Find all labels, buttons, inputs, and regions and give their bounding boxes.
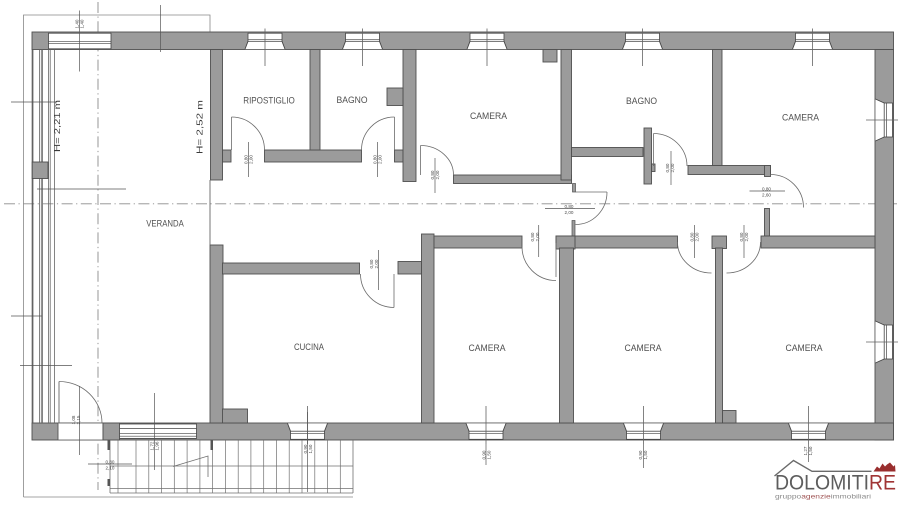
- svg-text:2,00: 2,00: [695, 232, 700, 241]
- svg-text:0,90: 0,90: [481, 450, 486, 459]
- svg-text:BAGNO: BAGNO: [337, 95, 368, 105]
- svg-text:CAMERA: CAMERA: [470, 111, 508, 121]
- svg-text:CUCINA: CUCINA: [294, 342, 325, 352]
- svg-text:0,80: 0,80: [665, 163, 670, 172]
- svg-text:2,10: 2,10: [106, 466, 115, 471]
- svg-text:2,60: 2,60: [762, 193, 771, 198]
- svg-text:RIPOSTIGLIO: RIPOSTIGLIO: [243, 96, 295, 106]
- svg-text:1,40: 1,40: [74, 19, 79, 28]
- svg-text:1,96: 1,96: [155, 441, 160, 450]
- svg-text:0,80: 0,80: [530, 232, 535, 241]
- svg-text:2,00: 2,00: [670, 163, 675, 172]
- svg-text:DOLOMITIRE: DOLOMITIRE: [775, 472, 896, 495]
- svg-text:1,50: 1,50: [808, 446, 813, 455]
- svg-text:0,80: 0,80: [372, 155, 377, 164]
- svg-text:1,40: 1,40: [80, 19, 85, 28]
- svg-text:H= 2,52 m: H= 2,52 m: [195, 100, 205, 154]
- svg-text:0,80: 0,80: [762, 187, 771, 192]
- svg-text:0,80: 0,80: [689, 232, 694, 241]
- svg-text:VERANDA: VERANDA: [146, 219, 184, 229]
- svg-text:CAMERA: CAMERA: [782, 113, 820, 123]
- svg-text:1,72: 1,72: [149, 441, 154, 450]
- svg-text:0,80: 0,80: [430, 170, 435, 179]
- svg-text:1,50: 1,50: [643, 450, 648, 459]
- svg-text:2,00: 2,00: [378, 155, 383, 164]
- svg-text:0,80: 0,80: [739, 232, 744, 241]
- svg-text:H= 2,21 m: H= 2,21 m: [52, 100, 62, 152]
- svg-text:0,80: 0,80: [243, 155, 248, 164]
- svg-text:0,80: 0,80: [106, 460, 115, 465]
- svg-text:2,15: 2,15: [76, 415, 81, 424]
- svg-text:2,00: 2,00: [374, 259, 379, 268]
- svg-text:2,00: 2,00: [744, 232, 749, 241]
- svg-text:0,80: 0,80: [565, 204, 574, 209]
- svg-text:1,08: 1,08: [71, 415, 76, 424]
- svg-text:CAMERA: CAMERA: [625, 343, 663, 353]
- svg-text:2,00: 2,00: [249, 155, 254, 164]
- svg-text:gruppoagenzieimmobiliari: gruppoagenzieimmobiliari: [775, 494, 871, 501]
- svg-text:0,90: 0,90: [303, 444, 308, 453]
- svg-text:1,50: 1,50: [487, 450, 492, 459]
- svg-text:0,90: 0,90: [638, 450, 643, 459]
- svg-text:1,50: 1,50: [308, 444, 313, 453]
- svg-text:BAGNO: BAGNO: [626, 96, 657, 106]
- svg-text:2,00: 2,00: [435, 170, 440, 179]
- svg-text:0,80: 0,80: [369, 259, 374, 268]
- svg-text:2,00: 2,00: [535, 232, 540, 241]
- svg-text:1,27: 1,27: [803, 446, 808, 455]
- svg-text:2,00: 2,00: [565, 210, 574, 215]
- svg-text:CAMERA: CAMERA: [786, 343, 824, 353]
- svg-text:CAMERA: CAMERA: [469, 343, 507, 353]
